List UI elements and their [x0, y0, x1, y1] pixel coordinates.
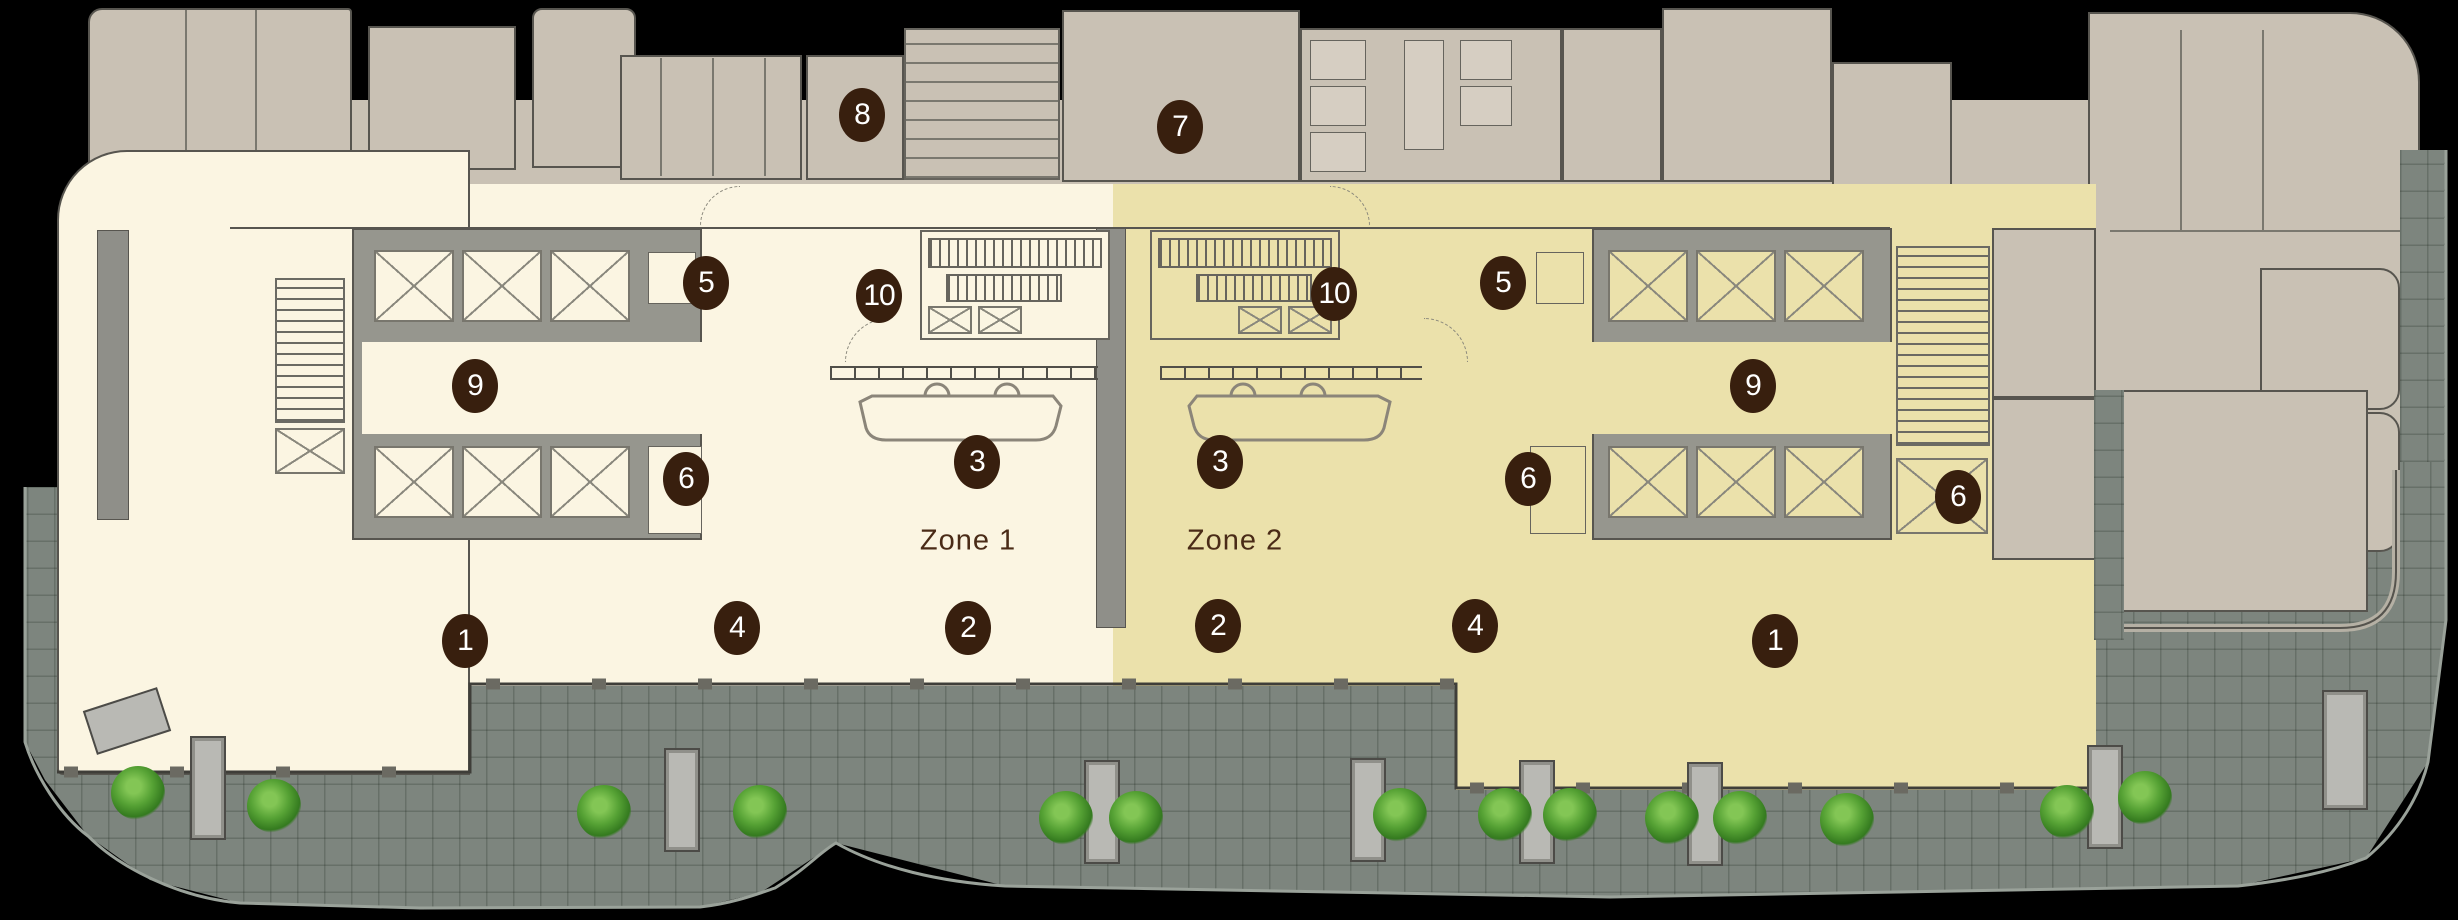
stall-partition [764, 58, 766, 176]
wing-partition [2110, 230, 2410, 232]
plan-marker-6a[interactable]: 6 [663, 452, 709, 506]
elevator-cab [462, 446, 542, 518]
plan-marker-4a[interactable]: 4 [714, 601, 760, 655]
plan-marker-3a[interactable]: 3 [954, 435, 1000, 489]
elevator-cab [1608, 250, 1688, 322]
wing-partition [2180, 30, 2182, 230]
plan-marker-6c[interactable]: 6 [1935, 470, 1981, 524]
elevator-cab [1696, 446, 1776, 518]
wc-stall [1460, 40, 1512, 80]
plan-marker-7[interactable]: 7 [1157, 100, 1203, 154]
stairwell-east [1896, 246, 1990, 446]
plan-marker-4b[interactable]: 4 [1452, 599, 1498, 653]
room-east-of-core [1992, 228, 2096, 398]
shrub [1820, 793, 1874, 847]
paved-strip [2094, 390, 2124, 640]
turnstiles-zone2 [1160, 366, 1422, 380]
stair-zone2 [1196, 274, 1312, 302]
zone2-label: Zone 2 [1187, 525, 1283, 558]
elevator-cab [550, 250, 630, 322]
room-east-of-core [1992, 398, 2096, 560]
shrub [1478, 788, 1532, 842]
storage-stall-room [620, 55, 802, 180]
elevator-cab [374, 250, 454, 322]
plan-marker-1a[interactable]: 1 [442, 614, 488, 668]
room-7-area [1062, 10, 1300, 182]
plan-marker-10b[interactable]: 10 [1311, 267, 1357, 321]
shrub [577, 785, 631, 839]
shrub [1109, 791, 1163, 845]
shrub [2118, 771, 2172, 825]
wc-stall [1310, 86, 1366, 126]
plan-marker-10a[interactable]: 10 [856, 269, 902, 323]
stair-zone1 [946, 274, 1062, 302]
elevator-cab [550, 446, 630, 518]
plan-marker-9b[interactable]: 9 [1730, 359, 1776, 413]
turnstiles-zone1 [830, 366, 1098, 380]
shrub [1543, 788, 1597, 842]
shrub [2040, 785, 2094, 839]
shrub [247, 779, 301, 833]
plan-marker-3b[interactable]: 3 [1197, 435, 1243, 489]
lift-small [1238, 306, 1282, 334]
rack-room [904, 28, 1060, 180]
elevator-cab [1696, 250, 1776, 322]
plan-marker-2a[interactable]: 2 [945, 601, 991, 655]
wc-stall [1404, 40, 1444, 150]
wall-strip [97, 230, 129, 520]
shrub [1373, 788, 1427, 842]
wc-stall [1310, 40, 1366, 80]
planter-bench [664, 748, 700, 852]
restroom-small [1536, 252, 1584, 304]
plan-marker-1b[interactable]: 1 [1752, 614, 1798, 668]
stall-partition [660, 58, 662, 176]
wing-partition [2262, 30, 2264, 230]
core-corridor-zone1 [362, 342, 702, 434]
plan-marker-5b[interactable]: 5 [1480, 256, 1526, 310]
shrub [1645, 791, 1699, 845]
room-top [1662, 8, 1832, 182]
escalator-zone1 [928, 238, 1102, 268]
lift-small [928, 306, 972, 334]
shaft-x [275, 428, 345, 474]
plan-marker-6b[interactable]: 6 [1505, 452, 1551, 506]
wc-stall [1310, 132, 1366, 172]
shrub [111, 766, 165, 820]
planter-bench [2322, 690, 2368, 810]
wc-stall [1460, 86, 1512, 126]
stairwell-west [275, 278, 345, 423]
partition [255, 10, 257, 168]
elevator-cab [1608, 446, 1688, 518]
elevator-cab [374, 446, 454, 518]
room-top [1562, 28, 1662, 182]
plan-marker-2b[interactable]: 2 [1195, 599, 1241, 653]
shrub [1039, 791, 1093, 845]
plan-marker-5a[interactable]: 5 [683, 256, 729, 310]
lift-small [978, 306, 1022, 334]
escalator-zone2 [1158, 238, 1332, 268]
zone1-label: Zone 1 [920, 525, 1016, 558]
elevator-cab [1784, 446, 1864, 518]
paved-strip [2400, 150, 2444, 462]
planter-bench [190, 736, 226, 840]
wing-room-east [2260, 268, 2400, 410]
room-northwest [88, 8, 352, 170]
plan-marker-9a[interactable]: 9 [452, 359, 498, 413]
partition [185, 10, 187, 168]
elevator-cab [1784, 250, 1864, 322]
shrub [733, 785, 787, 839]
stall-partition [712, 58, 714, 176]
elevator-cab [462, 250, 542, 322]
plan-marker-8[interactable]: 8 [839, 88, 885, 142]
wing-room-south [2122, 390, 2368, 612]
floor-plan-canvas: Zone 1 Zone 2 8 7 5 10 10 5 9 9 6 3 3 6 … [0, 0, 2458, 920]
room-top [368, 26, 516, 170]
shrub [1713, 791, 1767, 845]
